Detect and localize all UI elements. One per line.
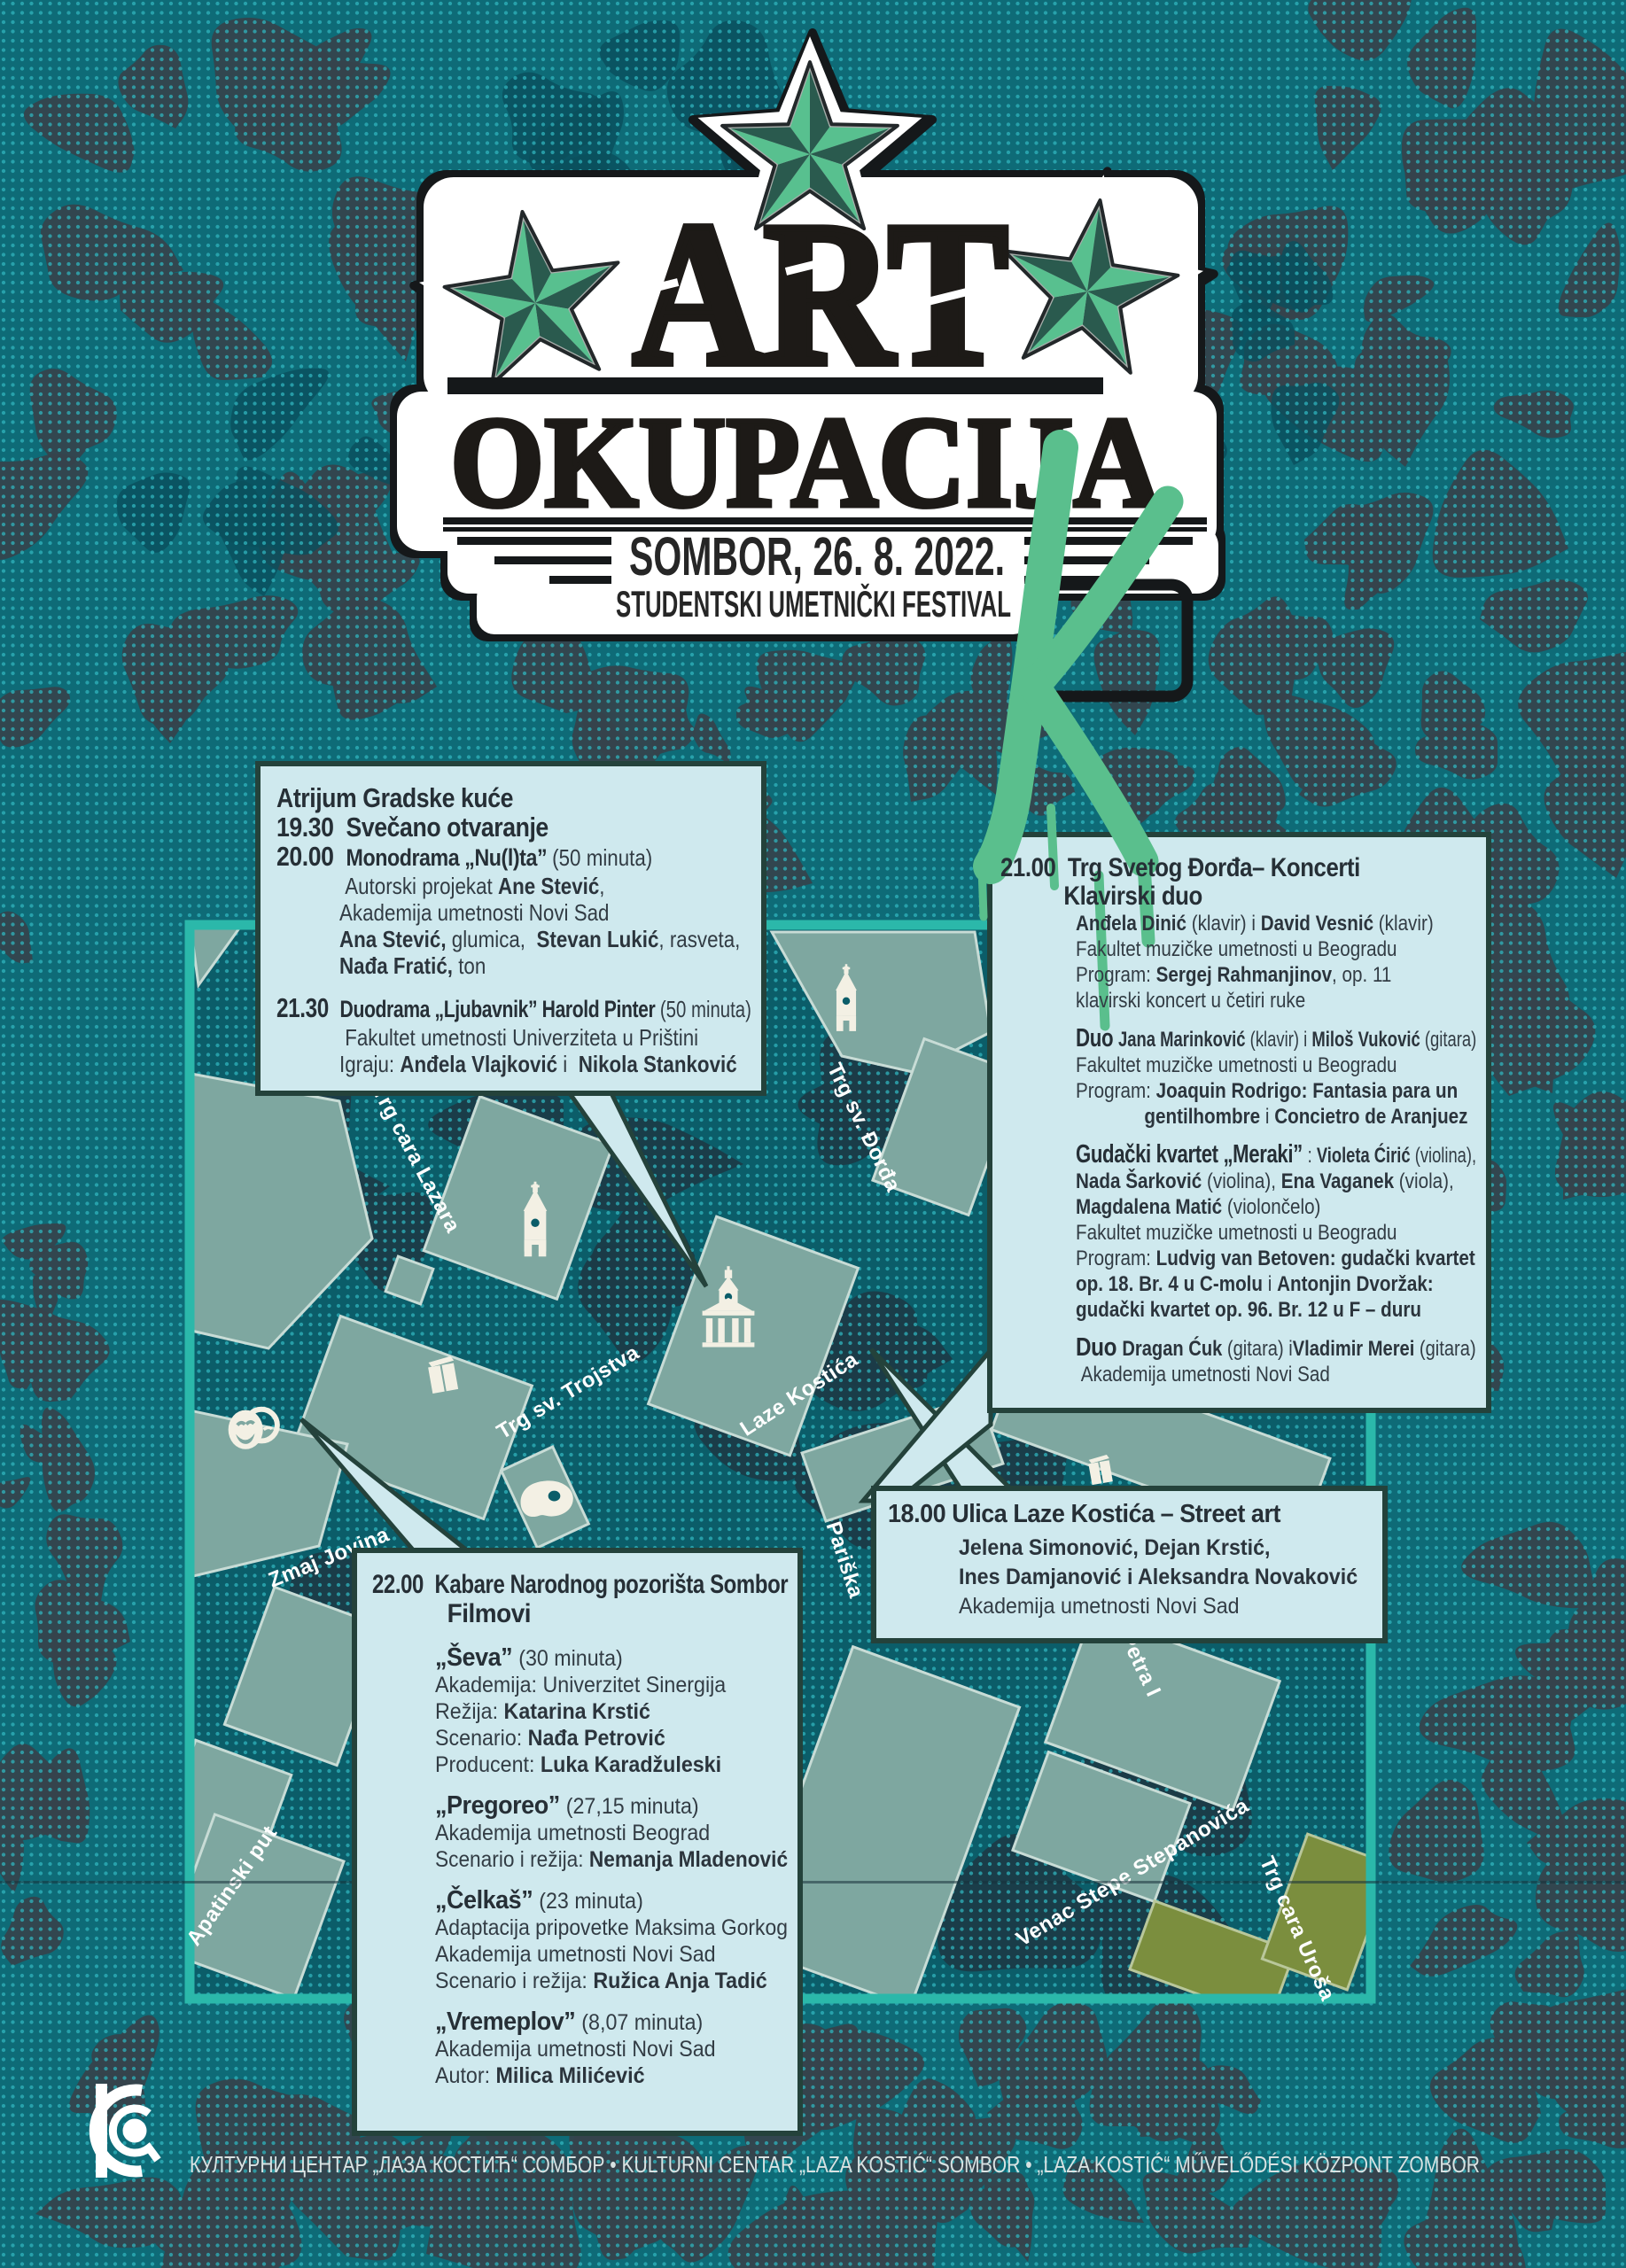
- svg-text:STUDENTSKI UMETNIČKI FESTIVAL: STUDENTSKI UMETNIČKI FESTIVAL: [616, 582, 1011, 625]
- svg-text:SOMBOR, 26. 8. 2022.: SOMBOR, 26. 8. 2022.: [629, 526, 1005, 586]
- svg-text:КУЛТУРНИ ЦЕНТАР „ЛАЗА КОСТИЋ“: КУЛТУРНИ ЦЕНТАР „ЛАЗА КОСТИЋ“ СОМБОР • K…: [190, 2152, 1480, 2178]
